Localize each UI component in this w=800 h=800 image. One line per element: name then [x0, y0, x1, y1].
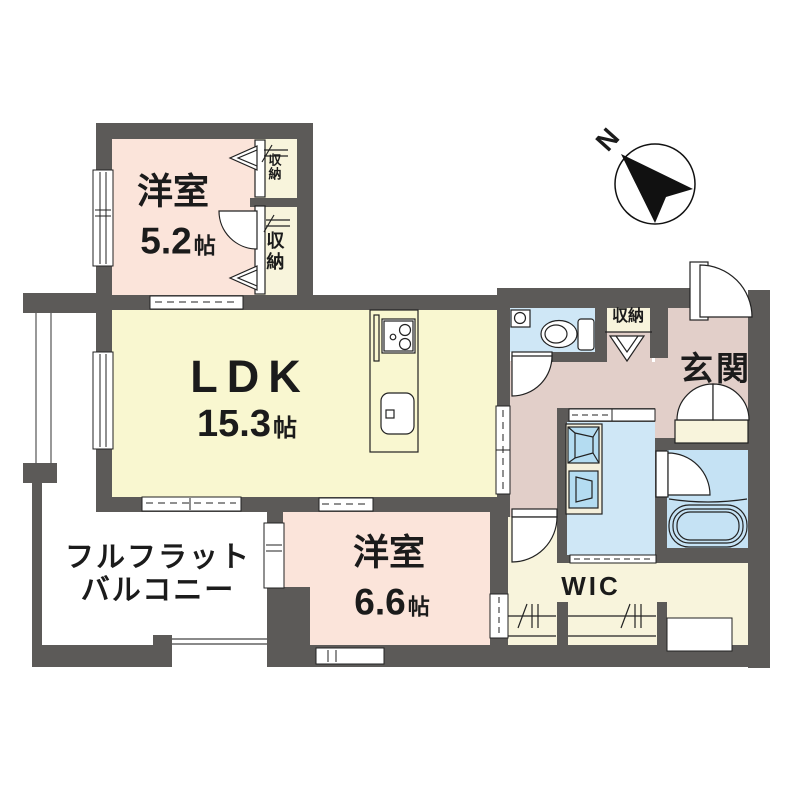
wall-segment	[32, 483, 42, 667]
balcony-label-line1: フルフラット	[65, 542, 251, 575]
toilet-bowl-icon	[541, 321, 577, 348]
balcony-label: フルフラット バルコニー	[65, 542, 251, 609]
floor-plan-drawing	[0, 0, 800, 800]
window	[264, 523, 284, 588]
wall-segment	[655, 548, 748, 563]
wall-segment	[748, 290, 770, 668]
wall-segment	[267, 587, 310, 667]
bedroom1-size-label: 5.2帖	[140, 221, 215, 264]
wall-segment	[297, 139, 313, 310]
ldk-size-label: 15.3帖	[197, 403, 297, 447]
wall-segment	[32, 645, 172, 667]
door-panel	[512, 509, 557, 517]
balcony-label-line2: バルコニー	[65, 575, 251, 608]
bedroom2-size-unit: 帖	[408, 595, 430, 620]
opening	[612, 409, 655, 421]
wall-segment	[23, 463, 57, 483]
toilet-tank-icon	[578, 319, 594, 350]
wall-segment	[650, 290, 668, 358]
bedroom2-size-value: 6.6	[354, 582, 405, 623]
washbasin-icon	[568, 427, 599, 463]
bedroom1-name-label: 洋室	[137, 170, 209, 211]
bedroom2-size-label: 6.6帖	[354, 582, 429, 625]
entrance-label: 玄関	[680, 350, 752, 388]
storage-hall-label: 収納	[612, 308, 644, 326]
wall-segment	[550, 352, 607, 362]
ldk-name-label: LDK	[190, 351, 309, 403]
sliding-door	[570, 555, 656, 563]
meter-box	[667, 618, 732, 651]
door-panel	[656, 451, 668, 497]
window	[93, 170, 113, 266]
floor-entrance-edge	[655, 358, 668, 445]
ldk-size-value: 15.3	[197, 403, 271, 445]
door-swing-entrance	[700, 265, 752, 317]
bedroom1-size-value: 5.2	[140, 221, 191, 262]
washer-icon	[569, 471, 598, 508]
stove-icon	[382, 319, 415, 353]
bedroom2-name-label: 洋室	[353, 531, 425, 572]
window	[316, 648, 384, 664]
ldk-size-unit: 帖	[273, 415, 297, 442]
balcony-sliding-window	[142, 497, 241, 511]
wall-post	[657, 602, 667, 652]
compass	[615, 144, 695, 224]
wall-segment	[283, 497, 510, 512]
floor-plan: 洋室 5.2帖 LDK 15.3帖 洋室 6.6帖 フルフラット バルコニー 玄…	[0, 0, 800, 800]
wic-label: WIC	[561, 572, 621, 602]
storage-lower-label: 収納	[264, 231, 285, 273]
storage-upper-label: 収納	[266, 153, 281, 181]
wall-post	[557, 602, 568, 652]
shoe-cabinet	[675, 420, 748, 443]
wall-segment	[153, 635, 172, 667]
window	[93, 352, 113, 449]
bedroom1-size-unit: 帖	[194, 234, 216, 259]
floor-ldk	[112, 310, 497, 497]
wall-segment	[96, 123, 313, 139]
